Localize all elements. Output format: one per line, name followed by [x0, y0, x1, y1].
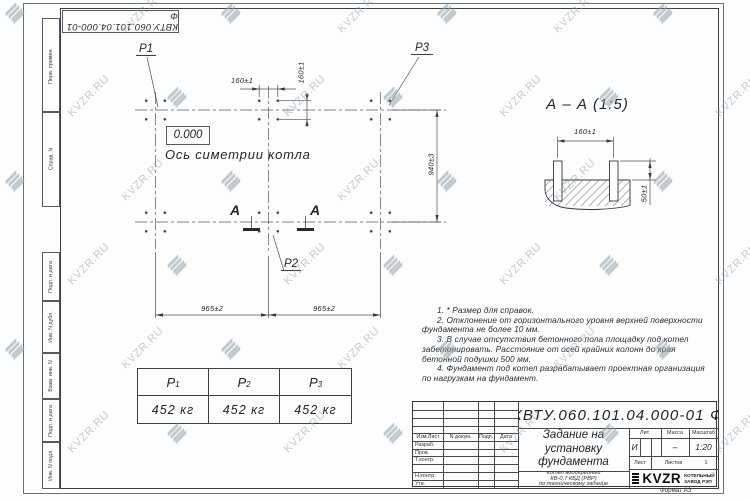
load-point-p3-label: P3: [411, 42, 433, 55]
elevation-mark: 0.000: [166, 126, 210, 145]
drawing-sheet: { "doc_number": "КВТУ.060.101.04.000-01 …: [0, 0, 750, 500]
dim-section-bolts: 160±1: [565, 127, 605, 136]
cut-letter-right: А: [310, 202, 320, 218]
boiler-axis-label: Ось симетрии котла: [165, 147, 311, 162]
dim-bolt-spacing-h: 160±1: [222, 76, 262, 85]
drawing-text-layer: P1 P3 P2 0.000 Ось симетрии котла 160±1 …: [0, 0, 750, 500]
load-point-p1-label: P1: [136, 43, 156, 56]
load-point-p2-label: P2: [281, 258, 301, 271]
dim-section-height: 50±1: [640, 177, 649, 211]
dim-span-right: 965±2: [304, 304, 344, 313]
section-view-title: А – А (1:5): [540, 96, 635, 113]
dim-plan-width: 940±3: [427, 147, 436, 183]
dim-bolt-spacing-v: 160±1: [297, 55, 306, 91]
cut-letter-left: А: [230, 202, 240, 218]
dim-span-left: 965±2: [192, 304, 232, 313]
